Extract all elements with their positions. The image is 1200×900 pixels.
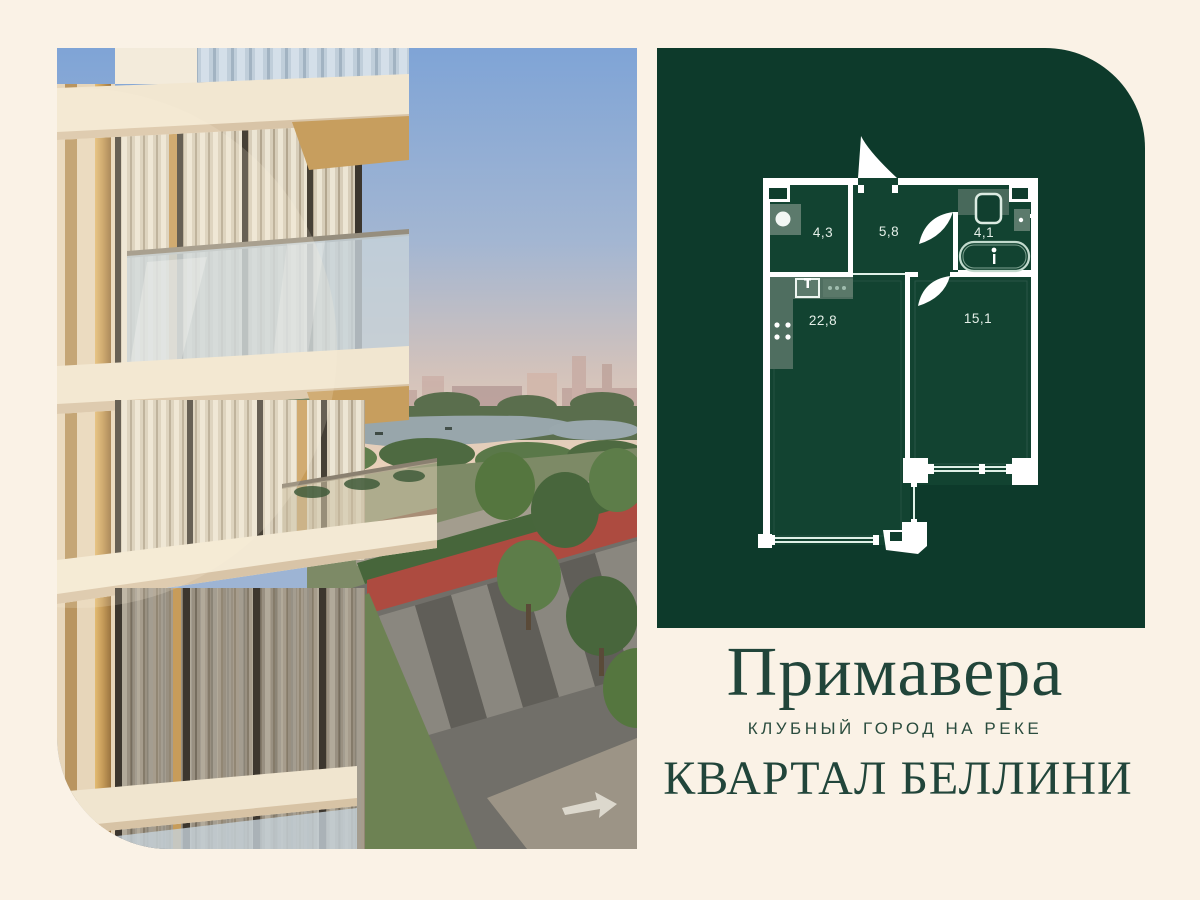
project-title: Примавера [640,636,1150,710]
project-subtitle: КЛУБНЫЙ ГОРОД НА РЕКЕ [640,719,1150,739]
quarter-name: КВАРТАЛ БЕЛЛИНИ [628,751,1168,806]
room-area-kitchen-living: 22,8 [809,313,837,328]
ad-banner: 4,3 5,8 4,1 22,8 15,1 Примавера КЛУБНЫЙ … [0,0,1200,900]
boat [375,432,383,435]
boat [445,427,452,430]
floor-plan: 4,3 5,8 4,1 22,8 15,1 [657,48,1145,628]
sink-icon [796,278,819,297]
washer-icon [770,204,801,235]
burners-icon [823,279,853,297]
room-area-bathroom: 4,1 [974,225,994,240]
room-area-entry-hall: 5,8 [879,224,899,239]
room-area-hallway: 4,3 [813,225,833,240]
entrance-door-icon [858,136,897,178]
room-area-bedroom: 15,1 [964,311,992,326]
building-photo-art [57,48,637,849]
building-photo [57,48,637,849]
toilet-icon [976,194,1001,223]
floor-plan-panel: 4,3 5,8 4,1 22,8 15,1 [657,48,1145,628]
